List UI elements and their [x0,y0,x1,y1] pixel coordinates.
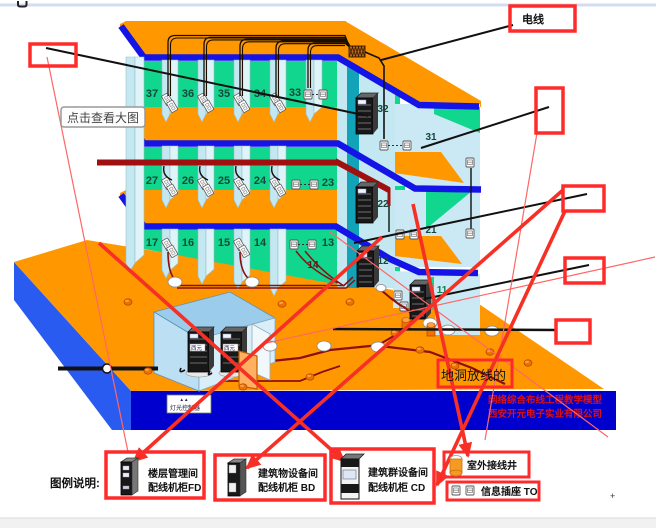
svg-text:楼层管理间: 楼层管理间 [148,467,198,480]
svg-text:16: 16 [182,237,194,249]
svg-text:17: 17 [146,237,158,249]
svg-text:地洞放线的: 地洞放线的 [441,368,506,383]
svg-text:配线机柜FD: 配线机柜FD [148,481,201,494]
svg-text:22: 22 [377,199,389,210]
svg-text:14: 14 [254,237,267,249]
svg-text:西安开元电子实业有限公司: 西安开元电子实业有限公司 [488,408,602,420]
svg-text:15: 15 [218,237,230,249]
svg-text:27: 27 [146,175,158,187]
svg-text:信息插座 TO: 信息插座 TO [481,485,538,498]
svg-text:35: 35 [218,88,230,100]
svg-text:12: 12 [377,256,389,267]
svg-text:32: 32 [377,104,389,115]
svg-text:36: 36 [182,88,194,100]
svg-text:网络综合布线工程教学模型: 网络综合布线工程教学模型 [488,394,603,406]
svg-text:配线机柜 BD: 配线机柜 BD [258,481,315,494]
svg-text:西元: 西元 [224,345,236,352]
svg-text:24: 24 [254,175,267,187]
svg-text:室外接线井: 室外接线井 [467,459,517,472]
svg-text:26: 26 [182,175,194,187]
svg-text:37: 37 [146,88,158,100]
svg-text:+: + [610,491,615,501]
svg-text:23: 23 [322,177,334,189]
svg-text:13: 13 [322,237,334,249]
svg-text:33: 33 [289,87,301,99]
svg-text:西元: 西元 [191,345,203,352]
svg-text:点击查看大图: 点击查看大图 [67,111,139,125]
svg-text:配线机柜 CD: 配线机柜 CD [368,481,425,494]
svg-text:▲▲: ▲▲ [180,397,189,402]
svg-text:图例说明:: 图例说明: [50,476,100,490]
svg-text:建筑群设备间: 建筑群设备间 [367,466,428,479]
svg-text:建筑物设备间: 建筑物设备间 [257,467,318,480]
svg-text:31: 31 [425,132,437,143]
svg-text:电线: 电线 [522,12,544,26]
svg-text:25: 25 [218,175,230,187]
